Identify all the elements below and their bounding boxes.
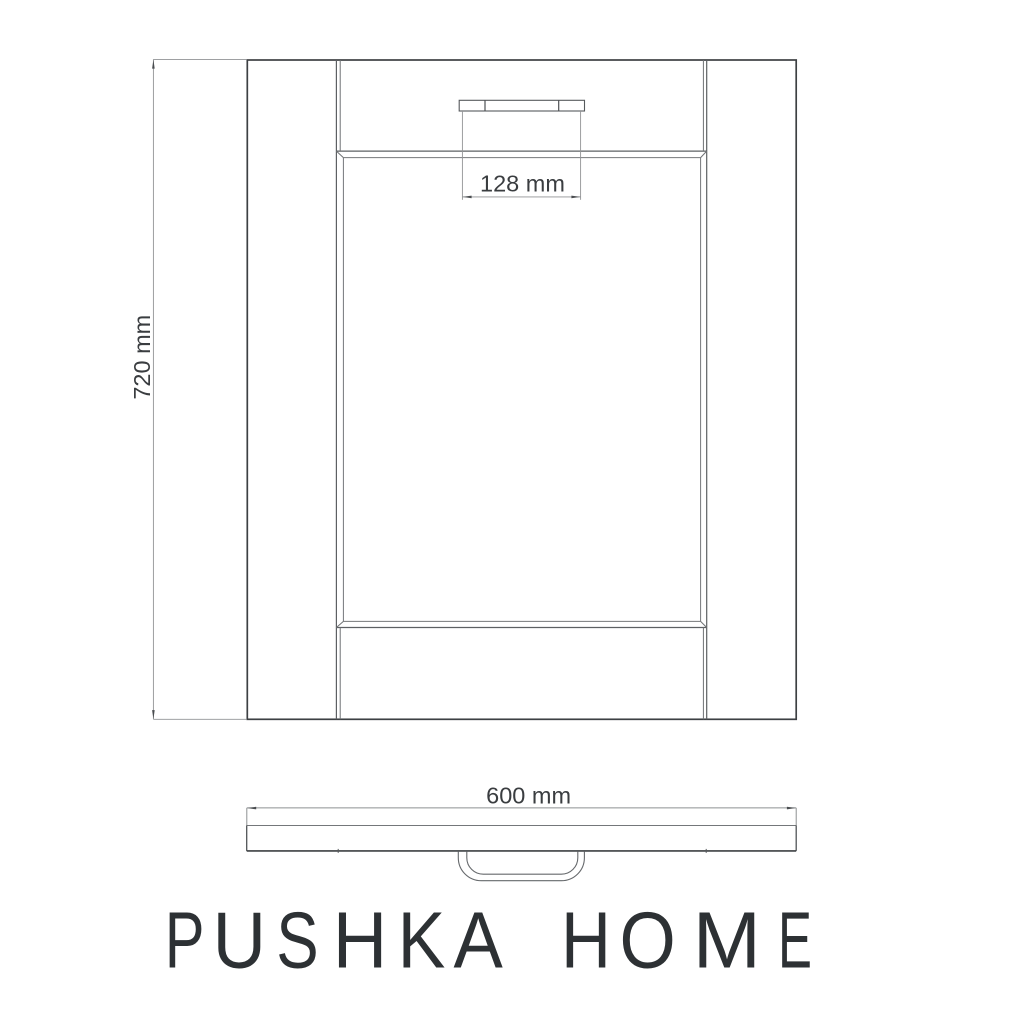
svg-text:720 mm: 720 mm	[129, 315, 155, 400]
svg-text:K: K	[398, 897, 446, 985]
svg-text:P: P	[165, 895, 205, 984]
svg-text:H: H	[561, 896, 611, 985]
svg-text:S: S	[276, 897, 318, 985]
svg-text:A: A	[454, 897, 504, 985]
svg-text:E: E	[778, 897, 812, 985]
svg-text:U: U	[213, 897, 266, 985]
svg-text:H: H	[333, 897, 388, 985]
svg-text:M: M	[693, 896, 761, 985]
svg-text:600 mm: 600 mm	[486, 782, 571, 808]
svg-text:128 mm: 128 mm	[480, 171, 565, 197]
svg-text:O: O	[620, 896, 676, 985]
